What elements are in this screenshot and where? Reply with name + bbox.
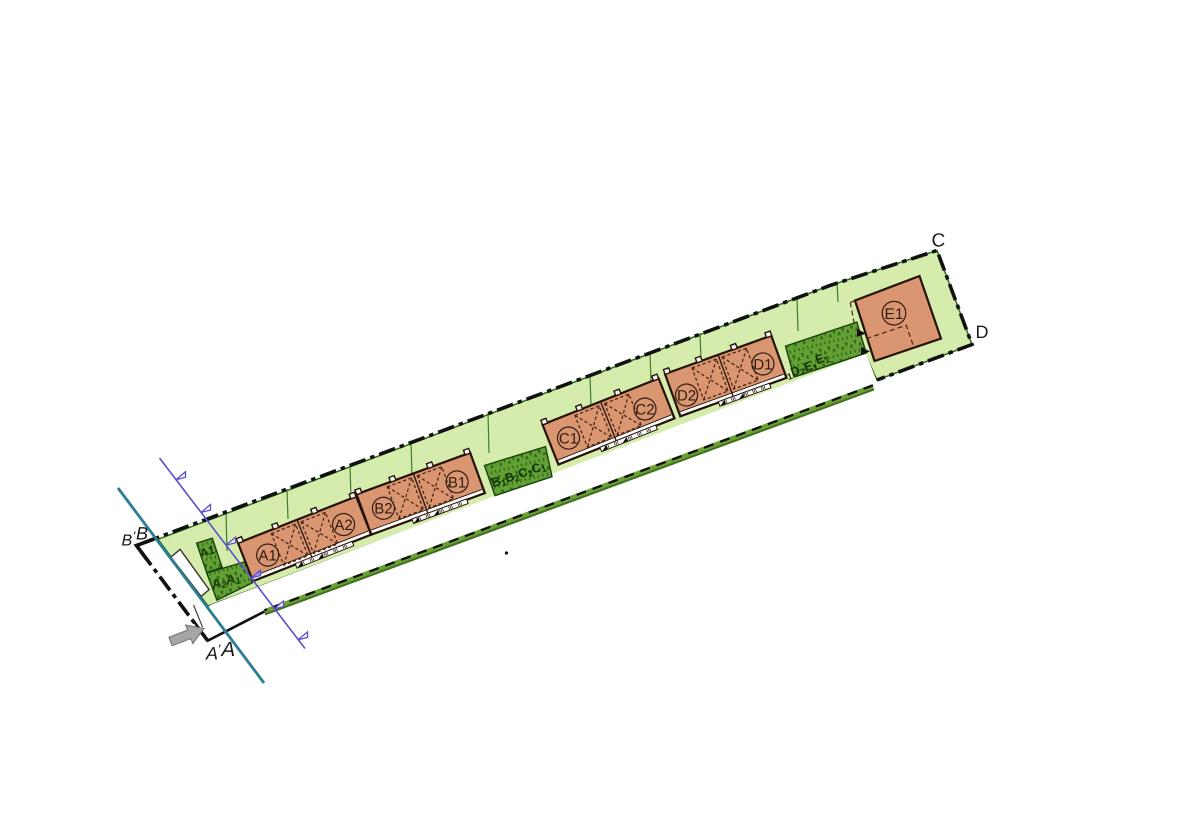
svg-text:B: B (122, 532, 133, 549)
svg-text:C: C (932, 231, 946, 252)
svg-text:B: B (136, 524, 148, 544)
svg-text:D: D (976, 322, 989, 342)
svg-text:A: A (205, 643, 218, 663)
svg-text:A2: A2 (334, 517, 352, 534)
svg-text:A: A (220, 638, 236, 661)
svg-text:A1: A1 (259, 547, 277, 564)
svg-text:B2: B2 (374, 501, 392, 518)
svg-text:B1: B1 (448, 474, 466, 491)
svg-text:D2: D2 (677, 387, 696, 404)
svg-text:D1: D1 (753, 356, 772, 373)
svg-text:C1: C1 (559, 430, 578, 447)
svg-text:C2: C2 (635, 401, 654, 418)
svg-text:E1: E1 (885, 306, 904, 323)
